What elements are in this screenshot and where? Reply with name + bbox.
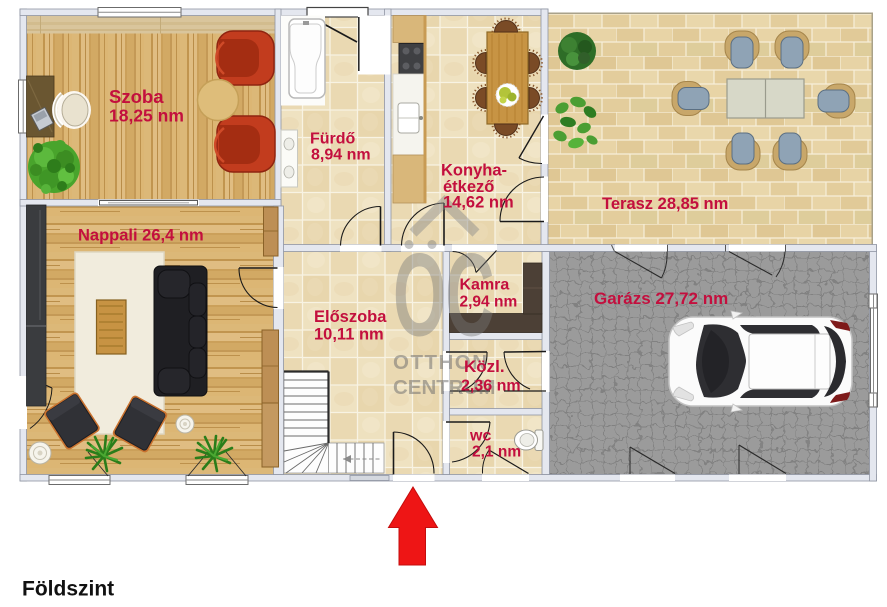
svg-text:wc: wc [469, 428, 491, 445]
svg-text:Konyha-: Konyha- [441, 162, 507, 180]
svg-text:10,11 nm: 10,11 nm [314, 326, 384, 344]
svg-text:2,1 nm: 2,1 nm [472, 444, 521, 461]
svg-text:Fürdő: Fürdő [310, 131, 356, 148]
svg-text:Szoba: Szoba [109, 86, 164, 107]
svg-text:Terasz 28,85 nm: Terasz 28,85 nm [602, 195, 728, 213]
svg-text:Garázs 27,72 nm: Garázs 27,72 nm [594, 289, 728, 308]
svg-text:Nappali 26,4 nm: Nappali 26,4 nm [78, 227, 204, 245]
svg-text:2,94 nm: 2,94 nm [460, 294, 518, 311]
svg-text:8,94 nm: 8,94 nm [311, 147, 371, 164]
svg-text:Kamra: Kamra [460, 277, 510, 294]
svg-text:Földszint: Földszint [22, 578, 114, 601]
svg-text:2,36 nm: 2,36 nm [461, 378, 521, 395]
svg-text:Előszoba: Előszoba [314, 308, 387, 326]
svg-text:14,62 nm: 14,62 nm [443, 194, 514, 212]
svg-text:18,25 nm: 18,25 nm [109, 106, 184, 126]
svg-text:Közl.: Közl. [464, 357, 505, 376]
